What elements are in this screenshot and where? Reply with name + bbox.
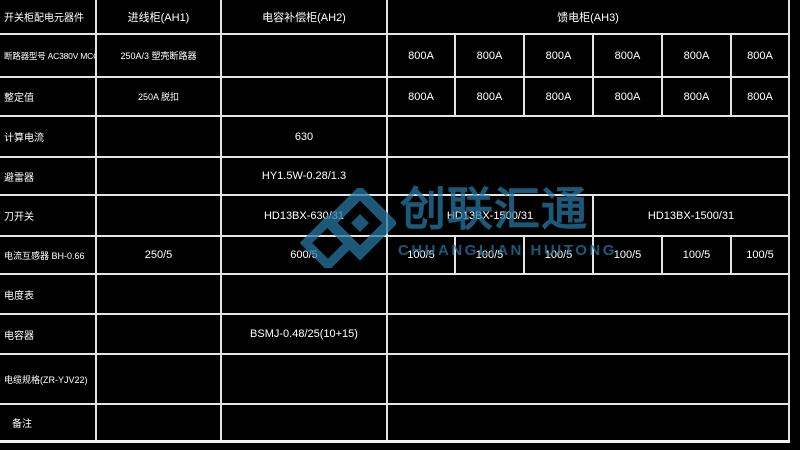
- arrester-incoming: [97, 158, 222, 194]
- setting-feeder-value: 800A: [388, 78, 456, 115]
- cable-capacitor: [222, 355, 388, 403]
- meter-incoming: [97, 275, 222, 313]
- capacitor-feeder: [388, 315, 790, 353]
- table-row: 避雷器 HY1.5W-0.28/1.3: [0, 158, 790, 196]
- row-label-remarks: 备注: [0, 405, 97, 440]
- cable-incoming: [97, 355, 222, 403]
- remarks-feeder: [388, 405, 790, 440]
- breaker-feeder-value: 800A: [594, 35, 663, 76]
- breaker-feeder-value: 800A: [732, 35, 790, 76]
- table-row: 开关柜配电元器件 进线柜(AH1) 电容补偿柜(AH2) 馈电柜(AH3): [0, 0, 790, 35]
- remarks-incoming: [97, 405, 222, 440]
- row-label-breaker: 断路器型号 AC380V MCCB: [0, 35, 97, 76]
- ct-feeder-value: 100/5: [388, 237, 456, 273]
- meter-feeder: [388, 275, 790, 313]
- meter-capacitor: [222, 275, 388, 313]
- equipment-table: 开关柜配电元器件 进线柜(AH1) 电容补偿柜(AH2) 馈电柜(AH3) 断路…: [0, 0, 790, 443]
- row-label-capacitor: 电容器: [0, 315, 97, 353]
- header-incoming-cabinet: 进线柜(AH1): [97, 0, 222, 33]
- header-feeder-cabinet: 馈电柜(AH3): [388, 0, 790, 33]
- setting-capacitor-value: [222, 78, 388, 115]
- setting-feeder-value: 800A: [525, 78, 594, 115]
- row-label-cable: 电缆规格(ZR-YJV22): [0, 355, 97, 403]
- ct-incoming-value: 250/5: [97, 237, 222, 273]
- table-row: 电度表: [0, 275, 790, 315]
- breaker-feeder-value: 800A: [663, 35, 732, 76]
- table-row: 电缆规格(ZR-YJV22): [0, 355, 790, 405]
- setting-feeder-value: 800A: [732, 78, 790, 115]
- arrester-capacitor-value: HY1.5W-0.28/1.3: [222, 158, 388, 194]
- calc-current-capacitor: 630: [222, 117, 388, 156]
- ct-feeder-value: 100/5: [663, 237, 732, 273]
- table-row: 电流互感器 BH-0.66 250/5 600/5 100/5 100/5 10…: [0, 237, 790, 275]
- setting-feeder-value: 800A: [663, 78, 732, 115]
- capacitor-incoming: [97, 315, 222, 353]
- table-row: 备注: [0, 405, 790, 443]
- ct-feeder-value: 100/5: [456, 237, 525, 273]
- calc-current-incoming: [97, 117, 222, 156]
- setting-feeder-value: 800A: [594, 78, 663, 115]
- table-row: 计算电流 630: [0, 117, 790, 158]
- table-row: 电容器 BSMJ-0.48/25(10+15): [0, 315, 790, 355]
- breaker-feeder-value: 800A: [456, 35, 525, 76]
- ct-capacitor-value: 600/5: [222, 237, 388, 273]
- row-label-arrester: 避雷器: [0, 158, 97, 194]
- ct-feeder-value: 100/5: [525, 237, 594, 273]
- capacitor-spec-value: BSMJ-0.48/25(10+15): [222, 315, 388, 353]
- row-label-knife-switch: 刀开关: [0, 196, 97, 235]
- knife-switch-capacitor-value: HD13BX-630/31: [222, 196, 388, 235]
- header-components: 开关柜配电元器件: [0, 0, 97, 33]
- table-row: 断路器型号 AC380V MCCB 250A/3 塑壳断路器 800A 800A…: [0, 35, 790, 78]
- row-label-calc-current: 计算电流: [0, 117, 97, 156]
- row-label-meter: 电度表: [0, 275, 97, 313]
- row-label-ct: 电流互感器 BH-0.66: [0, 237, 97, 273]
- ct-feeder-value: 100/5: [732, 237, 790, 273]
- knife-switch-feeder-value: HD13BX-1500/31: [594, 196, 790, 235]
- breaker-feeder-value: 800A: [388, 35, 456, 76]
- remarks-capacitor: [222, 405, 388, 440]
- knife-switch-incoming: [97, 196, 222, 235]
- header-capacitor-cabinet: 电容补偿柜(AH2): [222, 0, 388, 33]
- setting-incoming-value: 250A 脱扣: [97, 78, 222, 115]
- breaker-capacitor-value: [222, 35, 388, 76]
- setting-feeder-value: 800A: [456, 78, 525, 115]
- drawing-sheet: 开关柜配电元器件 进线柜(AH1) 电容补偿柜(AH2) 馈电柜(AH3) 断路…: [0, 0, 800, 450]
- row-label-setting: 整定值: [0, 78, 97, 115]
- ct-feeder-value: 100/5: [594, 237, 663, 273]
- breaker-incoming-value: 250A/3 塑壳断路器: [97, 35, 222, 76]
- table-row: 整定值 250A 脱扣 800A 800A 800A 800A 800A 800…: [0, 78, 790, 117]
- arrester-feeder: [388, 158, 790, 194]
- breaker-feeder-value: 800A: [525, 35, 594, 76]
- cable-feeder: [388, 355, 790, 403]
- knife-switch-feeder-value: HD13BX-1500/31: [388, 196, 594, 235]
- calc-current-feeder: [388, 117, 790, 156]
- table-row: 刀开关 HD13BX-630/31 HD13BX-1500/31 HD13BX-…: [0, 196, 790, 237]
